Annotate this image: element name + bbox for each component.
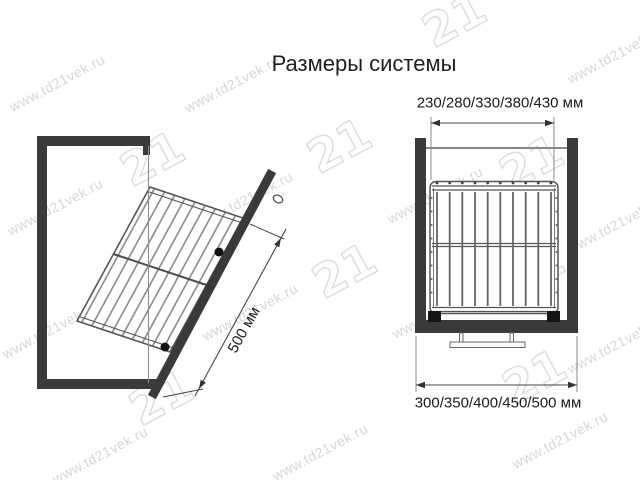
diagram-canvas: www.td21vek.ru www.td21vek.ru www.td21ve… xyxy=(0,0,640,480)
page-title: Размеры системы xyxy=(272,51,457,77)
door-mount-dot xyxy=(161,343,170,352)
basket-clamp xyxy=(547,311,560,322)
front-view-foot xyxy=(450,333,525,348)
door-hook xyxy=(272,193,284,204)
door-mount-dot xyxy=(215,248,224,257)
cabinet-width-label: 300/350/400/450/500 мм xyxy=(415,395,582,412)
front-view-basket xyxy=(428,182,560,323)
basket-clamp xyxy=(428,311,441,322)
basket-width-label: 230/280/330/380/430 мм xyxy=(417,95,584,112)
